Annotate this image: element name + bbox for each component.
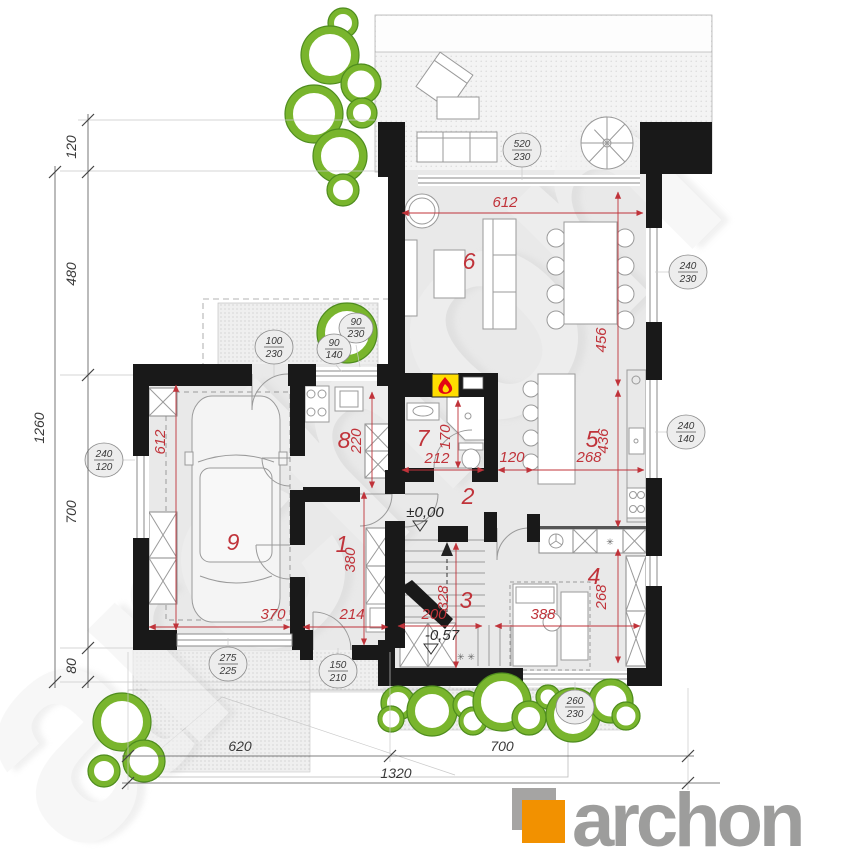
- dim-living-height: 456: [593, 327, 610, 353]
- svg-text:90: 90: [350, 317, 362, 328]
- chain-bottom-total-1320: 1320: [380, 765, 411, 781]
- svg-text:120: 120: [96, 462, 113, 473]
- dim-hall-width: 214: [338, 606, 364, 623]
- coffee-table: [434, 250, 465, 298]
- dim-utility-height: 220: [348, 428, 365, 455]
- logo-wordmark: archon: [572, 778, 801, 853]
- chain-left-480: 480: [63, 262, 79, 286]
- round-table: [405, 194, 439, 228]
- dim-living-width: 612: [492, 194, 518, 211]
- floor-plan-page: { "plan": { "watermark_text": "archon", …: [0, 0, 853, 853]
- chain-left-total-1260: 1260: [31, 412, 47, 443]
- room-label-8: 8: [338, 427, 351, 453]
- svg-text:230: 230: [265, 349, 283, 360]
- svg-text:150: 150: [330, 660, 347, 671]
- chain-bottom-620: 620: [228, 738, 252, 754]
- dim-passage: 120: [499, 449, 525, 466]
- room-label-5: 5: [586, 426, 599, 452]
- kitchen-sink: [629, 428, 644, 454]
- svg-text:90: 90: [328, 338, 340, 349]
- svg-text:240: 240: [679, 261, 697, 272]
- svg-text:275: 275: [219, 653, 237, 664]
- level-lowered: -0,57: [425, 627, 460, 644]
- spiral-stair: [581, 117, 633, 169]
- kitchen-stove: [627, 488, 646, 518]
- terrace-sliding-door: [418, 175, 640, 186]
- door-label-main-entrance: 150 210: [319, 654, 357, 688]
- dim-bath-width: 212: [423, 450, 450, 467]
- logo-orange-square: [522, 800, 565, 843]
- sofa: [483, 219, 516, 329]
- door-label-entrance-top: 100 230: [255, 330, 293, 364]
- tv-cabinet: [404, 240, 417, 316]
- utility-window-top: [316, 367, 377, 381]
- kitchen-window-right: [646, 380, 662, 478]
- room-label-3: 3: [460, 587, 473, 613]
- svg-text:140: 140: [678, 434, 695, 445]
- window-label-room4-bottom: 260 230: [556, 690, 594, 724]
- chain-left-700: 700: [63, 500, 79, 524]
- svg-text:100: 100: [266, 336, 283, 347]
- dim-stairs-width: 200: [420, 606, 447, 623]
- window-label-utility-2: 90 140: [317, 334, 351, 364]
- window-label-living-right: 240 230: [669, 255, 707, 289]
- svg-text:520: 520: [514, 139, 531, 150]
- dim-garage-length: 612: [152, 429, 169, 455]
- room-label-1: 1: [336, 531, 349, 557]
- svg-text:210: 210: [329, 673, 347, 684]
- level-ground: ±0,00: [406, 504, 444, 521]
- svg-text:240: 240: [677, 421, 695, 432]
- terrace-sofa: [417, 132, 497, 162]
- car-mirror-left: [185, 452, 193, 465]
- window-label-terrace-door: 520 230: [503, 133, 541, 167]
- archon-logo: archon: [512, 778, 801, 853]
- living-window-right: [646, 228, 662, 322]
- dim-garage-width: 370: [260, 606, 286, 623]
- asterisk-icon: ✳: [606, 538, 614, 548]
- terrace-table: [437, 97, 479, 119]
- svg-text:230: 230: [347, 329, 365, 340]
- chain-bottom-700: 700: [490, 738, 514, 754]
- svg-text:230: 230: [679, 274, 697, 285]
- svg-text:230: 230: [513, 152, 531, 163]
- car: [185, 396, 287, 622]
- room-label-4: 4: [588, 563, 601, 589]
- svg-text:225: 225: [219, 666, 237, 677]
- kitchen-bottom-cabinets: ✳: [539, 529, 646, 553]
- room4-tall-cabinets: [626, 556, 646, 666]
- room-label-6: 6: [463, 248, 476, 274]
- chain-left-120: 120: [63, 135, 79, 159]
- tree-cluster-top: [285, 8, 381, 206]
- svg-text:260: 260: [566, 696, 584, 707]
- room-label-9: 9: [227, 529, 240, 555]
- svg-text:240: 240: [95, 449, 113, 460]
- dim-bath-height: 170: [437, 424, 454, 450]
- utility-stove: [305, 386, 329, 422]
- floor-plan-drawing: archon archon: [0, 0, 853, 853]
- room-label-2: 2: [461, 483, 475, 509]
- small-window-right: [646, 556, 662, 586]
- dining-table: [564, 222, 617, 324]
- room-label-7: 7: [417, 425, 431, 451]
- dim-room4-width: 388: [530, 606, 556, 623]
- window-label-garage-left: 240 120: [85, 443, 123, 477]
- garage-door: [177, 634, 292, 646]
- garage-window-left: [133, 456, 149, 538]
- svg-text:140: 140: [326, 350, 343, 361]
- window-label-kitchen-right: 240 140: [667, 415, 705, 449]
- double-asterisk-icon: ✳ ✳: [457, 653, 475, 663]
- kitchen-island: [538, 374, 575, 484]
- door-label-garage: 275 225: [209, 647, 247, 681]
- chain-left-80: 80: [63, 658, 79, 674]
- svg-text:230: 230: [566, 709, 584, 720]
